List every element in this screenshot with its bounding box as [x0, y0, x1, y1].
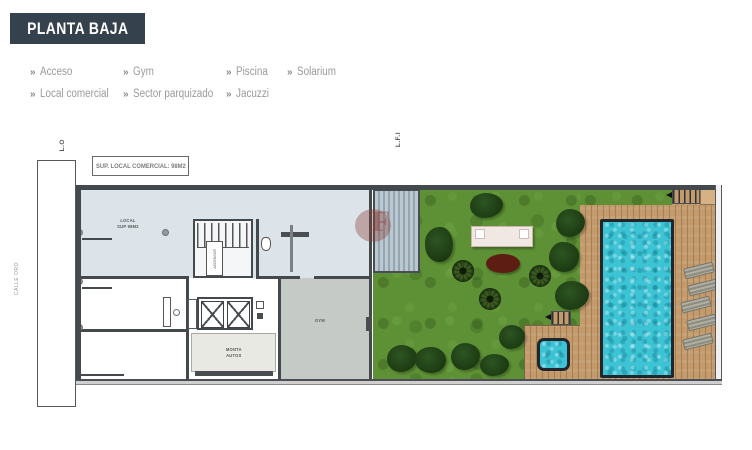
legend-label: Solarium — [297, 66, 336, 78]
logo-watermark-letter: F — [372, 205, 390, 239]
jacuzzi-steps — [551, 311, 571, 325]
chevron-right-icon: » — [226, 89, 232, 100]
toilet-icon — [261, 237, 271, 251]
legend-label: Jacuzzi — [236, 88, 269, 100]
partition — [290, 225, 293, 272]
column-circle — [173, 309, 180, 316]
chevron-right-icon: » — [123, 89, 129, 100]
garden-bench — [471, 226, 533, 247]
surface-annotation-box: SUP. LOCAL COMERCIAL: 98M2 — [92, 156, 189, 176]
chevron-right-icon: » — [30, 67, 36, 78]
column-dot — [162, 229, 169, 236]
counter — [281, 232, 309, 237]
chevron-right-icon: » — [287, 67, 293, 78]
fixture — [256, 301, 264, 309]
legend-column-1: » Acceso » Local comercial — [30, 66, 119, 110]
legend-label: Gym — [133, 66, 154, 78]
legend-column-3: » Piscina » Jacuzzi — [226, 66, 274, 110]
local-label: LOCAL SUP 98M2 — [107, 218, 148, 230]
garage-door-line — [80, 374, 124, 376]
wall-bottom — [76, 379, 722, 385]
service-shaft — [188, 299, 197, 329]
legend-label: Acceso — [40, 66, 72, 78]
car-lift-label: MONTA AUTOS — [226, 347, 242, 359]
page-title-text: PLANTA BAJA — [27, 19, 128, 39]
steps-arrow-icon — [666, 192, 672, 198]
legend-column-2: » Gym » Sector parquizado — [123, 66, 226, 110]
elevator-icon — [201, 301, 224, 328]
elevator-icon — [227, 301, 250, 328]
page-title: PLANTA BAJA — [10, 13, 145, 44]
chevron-right-icon: » — [30, 89, 36, 100]
axis-label-lo: L.O — [59, 139, 66, 151]
street-label: CALLE ORO — [14, 262, 20, 295]
wall — [278, 276, 281, 379]
wall-left — [76, 185, 81, 381]
legend-item-gym: » Gym — [123, 66, 226, 81]
elevator-bank — [197, 297, 253, 330]
duct — [163, 297, 171, 327]
pool-deck-steps — [672, 189, 700, 204]
legend-label: Sector parquizado — [133, 88, 213, 100]
car-lift-gate — [195, 371, 273, 376]
wall — [314, 276, 371, 279]
legend-item-acceso: » Acceso — [30, 66, 119, 81]
wall — [256, 219, 259, 279]
round-planter — [529, 265, 551, 287]
legend-label: Local comercial — [40, 88, 109, 100]
elevator-shaft-label: ASCENSOR — [206, 241, 223, 276]
gym-door — [366, 317, 372, 331]
bench-leg — [475, 229, 485, 239]
floor-plan-page: PLANTA BAJA » Acceso » Local comercial »… — [0, 0, 752, 450]
legend-item-jacuzzi: » Jacuzzi — [226, 88, 274, 103]
wall-top — [76, 185, 722, 190]
chevron-right-icon: » — [226, 67, 232, 78]
legend-item-solarium: » Solarium — [287, 66, 342, 81]
legend-column-4: » Solarium — [287, 66, 342, 88]
wall-right — [715, 185, 722, 385]
door-line — [82, 238, 112, 240]
gym-area — [280, 278, 371, 380]
sidewalk-strip — [37, 160, 76, 407]
jacuzzi-pool — [537, 338, 570, 371]
staircase — [197, 223, 249, 248]
surface-annotation-text: SUP. LOCAL COMERCIAL: 98M2 — [96, 163, 186, 170]
tree — [415, 347, 446, 373]
gym-label: GYM — [307, 318, 334, 324]
flower-bed — [486, 254, 520, 273]
legend-label: Piscina — [236, 66, 268, 78]
legend-item-sector-parquizado: » Sector parquizado — [123, 88, 226, 103]
car-lift-room: MONTA AUTOS — [191, 333, 276, 372]
tree — [549, 242, 579, 272]
wall — [80, 276, 187, 279]
chevron-right-icon: » — [123, 67, 129, 78]
bench-leg — [519, 229, 529, 239]
garden-top-strip — [580, 189, 672, 205]
wall — [80, 329, 187, 332]
steps-arrow-icon — [545, 314, 551, 320]
door-line — [82, 287, 112, 289]
swimming-pool — [600, 219, 674, 378]
tree — [425, 227, 453, 262]
legend-item-local-comercial: » Local comercial — [30, 88, 119, 103]
axis-label-lfi: L.F.I — [395, 132, 402, 147]
round-planter — [479, 288, 501, 310]
round-planter — [452, 260, 474, 282]
legend-item-piscina: » Piscina — [226, 66, 274, 81]
fixture — [257, 313, 263, 319]
